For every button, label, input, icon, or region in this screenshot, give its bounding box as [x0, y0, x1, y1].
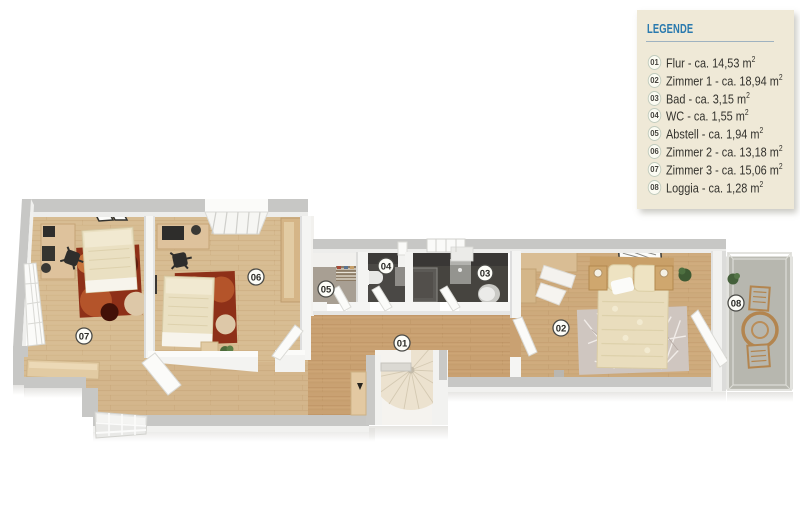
svg-text:05: 05 — [321, 285, 332, 296]
svg-text:08: 08 — [731, 299, 742, 310]
svg-text:04: 04 — [381, 262, 392, 273]
svg-text:02: 02 — [556, 324, 567, 335]
svg-text:07: 07 — [79, 332, 90, 343]
svg-text:03: 03 — [480, 269, 491, 280]
svg-text:06: 06 — [251, 273, 262, 284]
svg-text:01: 01 — [397, 339, 408, 350]
